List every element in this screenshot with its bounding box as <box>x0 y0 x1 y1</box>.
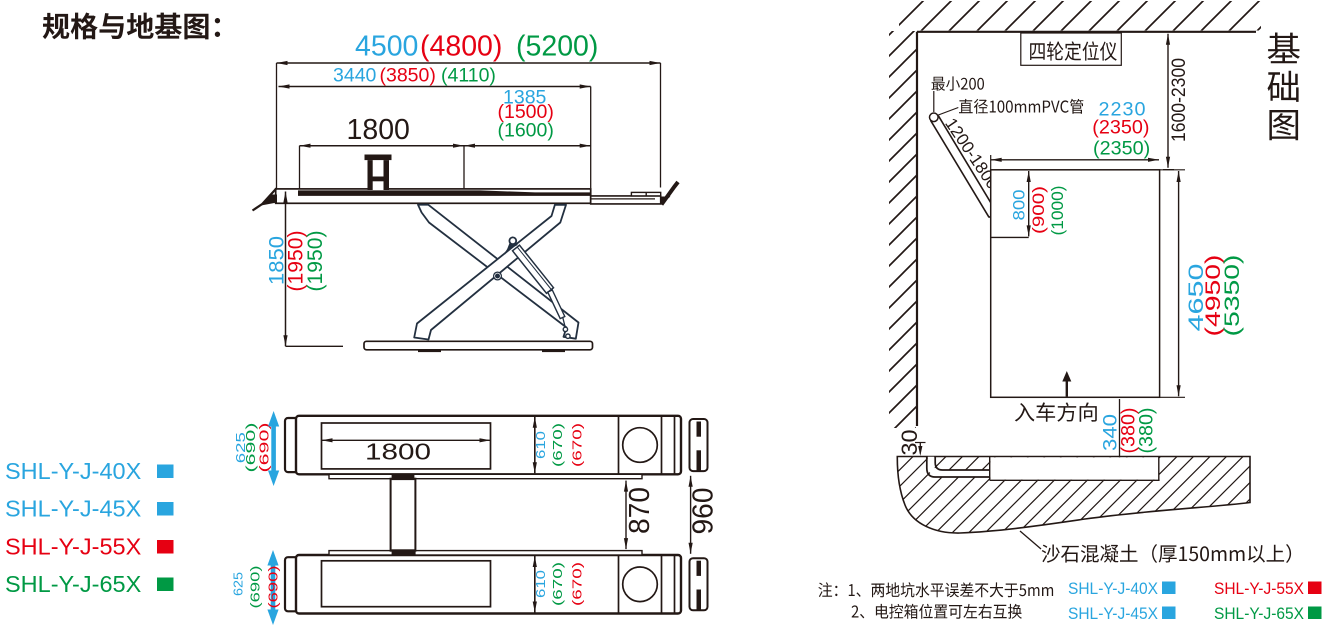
svg-text:1800: 1800 <box>347 114 410 146</box>
svg-text:(1000): (1000) <box>1049 186 1067 236</box>
svg-text:(670): (670) <box>569 562 584 606</box>
svg-text:(690): (690) <box>244 423 258 473</box>
svg-text:SHL-Y-J-65X: SHL-Y-J-65X <box>5 571 142 597</box>
svg-text:(670): (670) <box>569 423 584 467</box>
svg-text:610: 610 <box>533 431 548 459</box>
svg-text:SHL-Y-J-45X: SHL-Y-J-45X <box>1068 604 1158 623</box>
svg-text:1800: 1800 <box>365 439 431 465</box>
svg-text:4500: 4500 <box>355 31 418 63</box>
svg-text:SHL-Y-J-40X: SHL-Y-J-40X <box>1068 579 1158 598</box>
svg-text:800: 800 <box>1010 189 1028 220</box>
svg-text:(2350): (2350) <box>1092 117 1149 139</box>
svg-text:SHL-Y-J-40X: SHL-Y-J-40X <box>5 458 142 484</box>
svg-text:(690): (690) <box>249 566 263 609</box>
svg-text:(5200): (5200) <box>516 31 598 63</box>
svg-text:960: 960 <box>687 488 719 535</box>
svg-text:(4800): (4800) <box>420 31 502 63</box>
svg-text:SHL-Y-J-45X: SHL-Y-J-45X <box>5 496 142 522</box>
svg-text:SHL-Y-J-65X: SHL-Y-J-65X <box>1214 604 1304 623</box>
svg-text:(3850): (3850) <box>380 65 436 87</box>
svg-text:1600-2300: 1600-2300 <box>1168 58 1190 142</box>
svg-text:610: 610 <box>533 570 548 598</box>
svg-text:(1600): (1600) <box>498 119 554 141</box>
svg-text:SHL-Y-J-55X: SHL-Y-J-55X <box>1214 579 1304 598</box>
svg-text:(670): (670) <box>550 423 565 467</box>
svg-text:870: 870 <box>624 487 656 534</box>
svg-text:(2350): (2350) <box>1093 138 1150 160</box>
svg-text:(670): (670) <box>550 562 565 606</box>
svg-text:(690): (690) <box>267 566 281 609</box>
svg-text:(690): (690) <box>257 423 271 473</box>
svg-text:(380): (380) <box>1135 408 1157 454</box>
svg-text:(4110): (4110) <box>441 65 496 87</box>
svg-text:(1950): (1950) <box>304 231 327 292</box>
svg-text:SHL-Y-J-55X: SHL-Y-J-55X <box>5 534 142 560</box>
svg-text:625: 625 <box>232 572 246 596</box>
svg-text:(5350): (5350) <box>1221 255 1244 337</box>
svg-text:3440: 3440 <box>333 65 377 87</box>
svg-text:(900): (900) <box>1030 186 1048 234</box>
